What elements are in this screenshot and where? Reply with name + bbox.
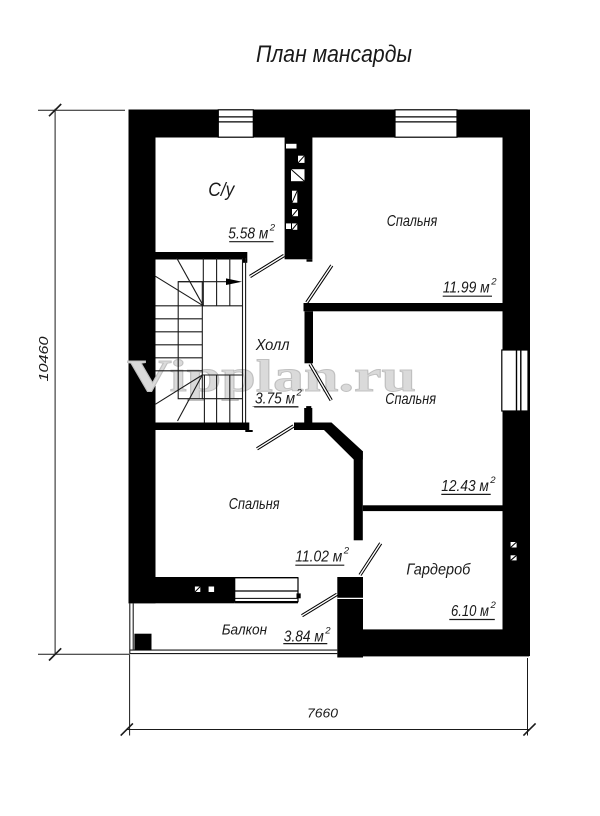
svg-text:2: 2 <box>490 277 497 288</box>
svg-text:Спальня: Спальня <box>385 391 436 408</box>
svg-text:План мансарды: План мансарды <box>256 41 412 68</box>
svg-text:12.43 м: 12.43 м <box>441 478 489 495</box>
svg-text:2: 2 <box>324 626 331 637</box>
svg-text:Спальня: Спальня <box>387 213 438 230</box>
svg-text:Гардероб: Гардероб <box>406 562 471 579</box>
svg-text:11.02 м: 11.02 м <box>295 549 342 566</box>
svg-text:2: 2 <box>490 600 497 611</box>
svg-text:6.10 м: 6.10 м <box>451 603 489 620</box>
svg-text:5.58 м: 5.58 м <box>228 226 268 243</box>
svg-text:Спальня: Спальня <box>229 496 280 513</box>
svg-text:3.84 м: 3.84 м <box>284 629 324 646</box>
svg-text:Холл: Холл <box>255 337 290 354</box>
svg-text:2: 2 <box>343 546 350 557</box>
svg-text:2: 2 <box>269 223 276 234</box>
svg-text:11.99 м: 11.99 м <box>443 280 490 297</box>
svg-text:С/у: С/у <box>208 180 235 201</box>
svg-text:2: 2 <box>296 387 303 398</box>
svg-text:10460: 10460 <box>36 336 51 382</box>
svg-text:Балкон: Балкон <box>222 622 267 639</box>
svg-text:3.75 м: 3.75 м <box>255 390 295 407</box>
svg-text:2: 2 <box>489 475 496 486</box>
svg-text:7660: 7660 <box>307 706 339 721</box>
